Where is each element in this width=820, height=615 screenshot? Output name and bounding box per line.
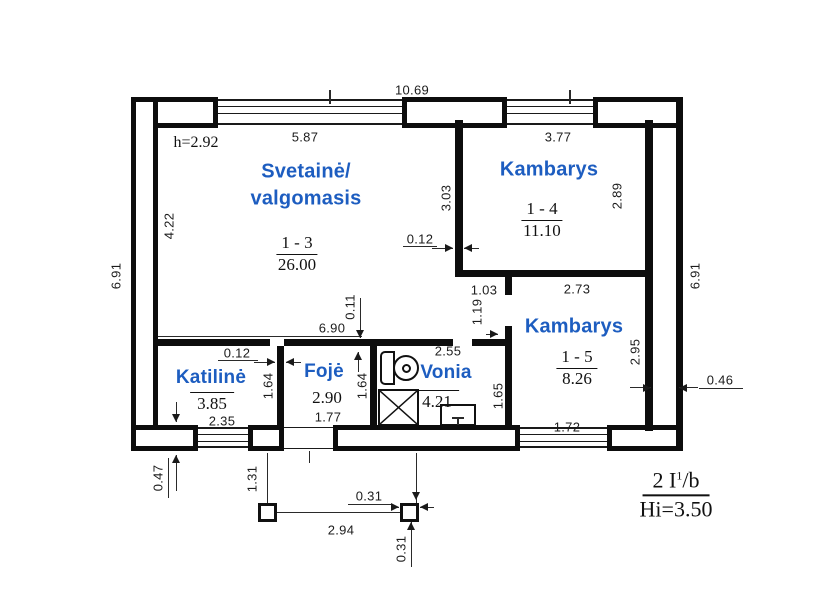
dimension-line [309, 451, 310, 463]
dimension-arrow-icon [464, 244, 472, 252]
room-label-svetaine-line2: valgomasis [251, 188, 362, 211]
dim-foje-wall-length: 1.64 [355, 373, 370, 400]
dimension-line [699, 388, 743, 389]
room-label-katiline: Katilinė [176, 367, 246, 389]
shower-tray [378, 389, 419, 426]
wall-segment [455, 120, 463, 272]
room-area-kambarys-1-5: 1 - 5 8.26 [556, 347, 597, 389]
dim-left-height: 6.91 [109, 263, 124, 290]
dimension-arrow-icon [172, 414, 180, 422]
dimension-arrow-icon [407, 522, 415, 530]
dimension-line [267, 453, 268, 503]
room-number: 1 - 3 [276, 233, 317, 255]
dimension-arrow-icon [286, 358, 294, 366]
room-number: 1 - 4 [521, 199, 562, 221]
room-label-kambarys-1-5: Kambarys [525, 316, 623, 339]
window-line [198, 441, 248, 442]
dim-door-1-19: 1.19 [470, 299, 485, 326]
window-line [218, 123, 402, 125]
room-label-svetaine-line1: Svetainė/ [261, 161, 351, 184]
exterior-wall [333, 425, 520, 451]
dim-partition-1-4-thickness: 0.12 [407, 232, 434, 247]
dim-kambarys-1-4-width: 3.77 [543, 130, 574, 145]
dim-overall-top: 10.69 [395, 83, 429, 98]
dimension-line [218, 360, 258, 361]
dimension-line [569, 90, 571, 104]
wall-segment [153, 339, 270, 346]
window-line [507, 123, 593, 125]
window-line [218, 113, 402, 114]
dimension-line [329, 90, 331, 104]
window-line [284, 427, 333, 428]
dim-katiline-wall-length: 1.64 [261, 373, 276, 400]
dimension-arrow-icon [172, 455, 180, 463]
window-line [198, 427, 248, 429]
dim-kambarys-1-5-width: 2.73 [564, 282, 591, 297]
window-line [198, 446, 248, 448]
room-area-svetaine: 1 - 3 26.00 [276, 233, 317, 275]
dim-opening-1-03: 1.03 [471, 283, 498, 298]
room-label-vonia: Vonia [420, 362, 471, 384]
dimension-line [277, 512, 400, 513]
dim-inner-wall-length: 6.90 [317, 321, 348, 336]
dim-porch-column-height: 0.31 [394, 536, 409, 563]
window-line [520, 434, 607, 435]
dim-porch-offset-left: 0.47 [151, 465, 166, 492]
wall-segment [676, 97, 683, 451]
window-line [507, 106, 593, 107]
shower-cross-icon [380, 391, 417, 424]
dim-right-wall-thickness: 0.46 [707, 373, 734, 388]
room-area: 26.00 [276, 255, 317, 275]
dimension-line [348, 504, 392, 505]
exterior-wall [131, 97, 158, 451]
room-area-vonia: 4.21 [415, 390, 459, 412]
dim-svetaine-width: 5.87 [290, 130, 321, 145]
dimension-arrow-icon [267, 358, 275, 366]
exterior-wall [593, 97, 683, 128]
dimension-arrow-icon [420, 503, 428, 511]
dim-porch-drop: 1.31 [245, 466, 260, 493]
wall-segment [277, 346, 284, 425]
dimension-arrow-icon [643, 384, 651, 392]
window-line [218, 99, 402, 101]
title-block: 2 I1/b Hi=3.50 [640, 463, 713, 522]
exterior-wall [131, 425, 198, 451]
dim-partition-1-4-length: 3.03 [439, 185, 454, 212]
window-line [507, 113, 593, 114]
dimension-arrow-icon [490, 330, 498, 338]
wall-segment [505, 277, 512, 295]
dimension-arrow-icon [679, 384, 687, 392]
room-label-kambarys-1-4: Kambarys [500, 159, 598, 182]
wall-segment [455, 270, 653, 277]
room-area: 11.10 [521, 221, 562, 241]
wall-segment [284, 339, 453, 346]
room-area-katiline: 3.85 [190, 392, 234, 414]
dim-katiline-wall-thickness: 0.12 [224, 346, 251, 361]
window-line [520, 446, 607, 448]
dim-vonia-height: 1.65 [491, 383, 506, 410]
dim-porch-column-width: 0.31 [356, 489, 383, 504]
floor-plan: Svetainė/ valgomasis Kambarys Kambarys K… [0, 0, 820, 615]
dimension-arrow-icon [391, 503, 399, 511]
plan-height: Hi=3.50 [640, 497, 713, 523]
window-line [520, 427, 607, 429]
dimension-line [403, 246, 437, 247]
window-line [198, 434, 248, 435]
exterior-wall [248, 425, 284, 451]
dimension-line [168, 458, 169, 498]
window-line [507, 99, 593, 101]
dimension-arrow-icon [354, 352, 362, 360]
dim-porch-span: 2.94 [328, 523, 355, 538]
dim-svetaine-height: 4.22 [162, 213, 177, 240]
dim-kambarys-1-4-height: 2.89 [610, 183, 625, 210]
dimension-arrow-icon [356, 330, 364, 338]
window-line [520, 441, 607, 442]
plan-index: 2 I1/b [643, 463, 710, 496]
dim-kambarys-1-5-height: 2.95 [628, 339, 643, 366]
room-area-kambarys-1-4: 1 - 4 11.10 [521, 199, 562, 241]
window-line [218, 106, 402, 107]
toilet-bowl-inner [402, 364, 411, 373]
window-line [284, 448, 333, 449]
dimension-line [158, 336, 362, 337]
room-area: 8.26 [556, 369, 597, 389]
dim-inner-wall-thickness: 0.11 [343, 294, 358, 320]
room-label-foje: Fojė [304, 361, 344, 383]
room-number: 1 - 5 [556, 347, 597, 369]
dimension-arrow-icon [445, 244, 453, 252]
porch-column [400, 503, 419, 522]
wall-segment [505, 346, 512, 425]
dimension-arrow-icon [412, 492, 420, 500]
porch-column [258, 503, 277, 522]
dim-right-height: 6.91 [688, 263, 703, 290]
wall-segment [472, 339, 512, 346]
height-note: h=2.92 [173, 134, 218, 152]
room-area-foje: 2.90 [312, 388, 342, 408]
dim-foje-width: 1.77 [315, 410, 342, 425]
wall-segment [370, 346, 377, 425]
